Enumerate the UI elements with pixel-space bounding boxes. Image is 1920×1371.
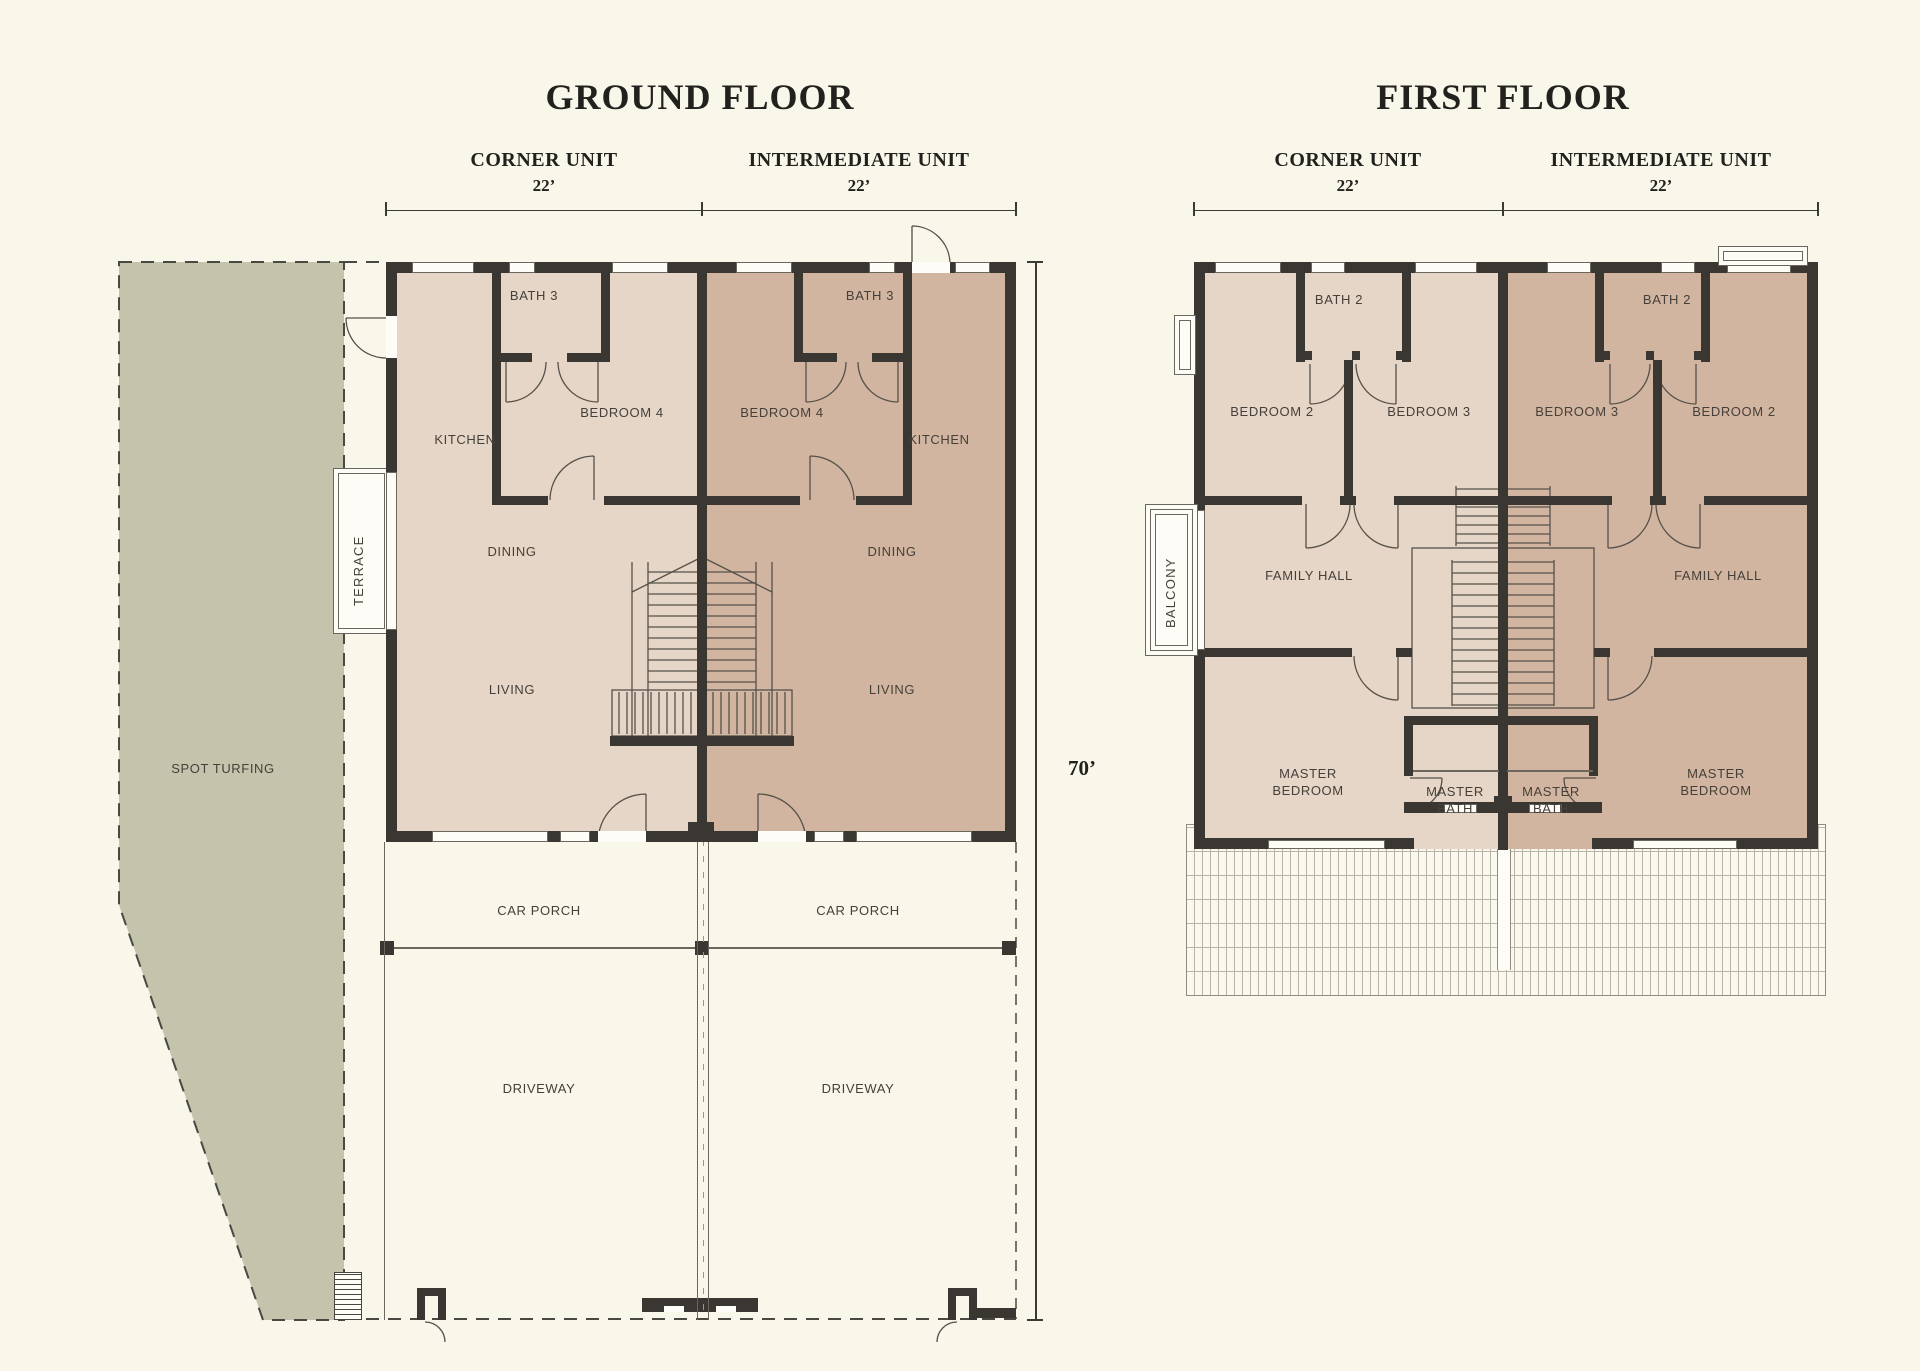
room-label-bath2-intermediate: BATH 2 [1643, 292, 1691, 309]
wall [1396, 351, 1411, 360]
first-party-wall [1498, 262, 1508, 850]
wall [1653, 360, 1662, 500]
wall [1194, 496, 1302, 505]
room-label-master-bedroom-corner: MASTER BEDROOM [1272, 766, 1343, 800]
bath-partition [1507, 770, 1593, 772]
room-label-bath3-corner: BATH 3 [510, 288, 558, 305]
dim-tick [385, 202, 387, 216]
wall [872, 353, 912, 362]
room-label-dining-corner: DINING [487, 544, 536, 561]
wall [567, 353, 610, 362]
depth-dimension-line [1035, 262, 1037, 1320]
first-width-dimension-line [1194, 210, 1818, 211]
wall [1503, 716, 1598, 725]
window [432, 831, 548, 842]
wall [1404, 716, 1499, 725]
wall [1402, 262, 1411, 362]
wall [604, 496, 702, 505]
ground-corner-unit-width: 22’ [533, 176, 556, 196]
room-label-car-porch-corner: CAR PORCH [497, 903, 580, 920]
room-label-kitchen-corner: KITCHEN [434, 432, 495, 449]
side-door-opening [386, 316, 397, 358]
terrace-sliding-door [386, 472, 397, 630]
window [1215, 262, 1281, 273]
ground-intermediate-unit-header: INTERMEDIATE UNIT [749, 149, 970, 172]
porch-post [380, 941, 394, 955]
first-floor-title: FIRST FLOOR [1376, 76, 1629, 118]
dim-tick [1027, 1319, 1043, 1321]
wall [1340, 496, 1356, 505]
wall [601, 262, 610, 362]
room-label-driveway-corner: DRIVEWAY [503, 1081, 576, 1098]
site-label-spot-turfing: SPOT TURFING [171, 761, 275, 778]
dim-tick [1015, 202, 1017, 216]
wall [702, 496, 800, 505]
wall [1654, 648, 1812, 657]
room-label-bedroom2-corner: BEDROOM 2 [1230, 404, 1313, 421]
wall [1396, 648, 1412, 657]
wall [492, 496, 548, 505]
wall [1352, 351, 1360, 360]
first-corner-unit-header: CORNER UNIT [1274, 149, 1421, 172]
wall [1650, 496, 1666, 505]
wall [794, 353, 837, 362]
window [869, 262, 895, 273]
room-label-bedroom3-corner: BEDROOM 3 [1387, 404, 1470, 421]
doorbell-box [688, 822, 714, 834]
first-intermediate-unit-width: 22’ [1650, 176, 1673, 196]
wall [1646, 351, 1654, 360]
wall [856, 496, 912, 505]
window [856, 831, 972, 842]
room-label-bedroom2-intermediate: BEDROOM 2 [1692, 404, 1775, 421]
side-window-box [1174, 315, 1196, 375]
driveway-divider [697, 842, 709, 1320]
room-label-driveway-intermediate: DRIVEWAY [822, 1081, 895, 1098]
site-label-terrace: TERRACE [352, 496, 365, 606]
plan-linework [0, 0, 1920, 1371]
window [1547, 262, 1591, 273]
window [1661, 262, 1695, 273]
bay-window-glass [1723, 251, 1803, 261]
ground-right-wall [1005, 262, 1016, 842]
room-label-master-bath-intermediate: MASTER BATH [1522, 784, 1580, 818]
dim-tick [1193, 202, 1195, 216]
wall [1194, 648, 1352, 657]
first-intermediate-unit-header: INTERMEDIATE UNIT [1551, 149, 1772, 172]
window [955, 262, 990, 273]
side-window-glass [1179, 320, 1191, 370]
ground-intermediate-unit-width: 22’ [848, 176, 871, 196]
dim-tick [1027, 261, 1043, 263]
wall [1589, 716, 1598, 776]
room-label-kitchen-intermediate: KITCHEN [908, 432, 969, 449]
room-label-family-hall-intermediate: FAMILY HALL [1674, 568, 1762, 585]
wall [1404, 716, 1413, 776]
window [612, 262, 668, 273]
wall [492, 262, 501, 362]
back-door-opening [912, 262, 950, 273]
room-label-bedroom3-intermediate: BEDROOM 3 [1535, 404, 1618, 421]
wall [1344, 360, 1353, 500]
room-label-living-corner: LIVING [489, 682, 535, 699]
room-label-bath3-intermediate: BATH 3 [846, 288, 894, 305]
wall [1701, 262, 1710, 362]
first-corner-unit-width: 22’ [1337, 176, 1360, 196]
wall [794, 262, 803, 362]
dim-tick [1502, 202, 1504, 216]
ground-corner-unit-header: CORNER UNIT [470, 149, 617, 172]
room-label-master-bedroom-intermediate: MASTER BEDROOM [1680, 766, 1751, 800]
depth-dimension-label: 70’ [1068, 756, 1096, 781]
wall [1296, 351, 1312, 360]
wall [903, 262, 912, 362]
porch-post [1002, 941, 1016, 955]
window [412, 262, 474, 273]
wall [1595, 351, 1610, 360]
dim-tick [701, 202, 703, 216]
wall [1508, 496, 1612, 505]
first-right-wall [1807, 262, 1818, 849]
wall [1296, 262, 1305, 362]
room-label-bath2-corner: BATH 2 [1315, 292, 1363, 309]
doorbell-box [1494, 796, 1512, 808]
front-door-opening [598, 831, 646, 842]
wall [1704, 496, 1812, 505]
wall [1694, 351, 1710, 360]
meter-box [334, 1272, 362, 1320]
wall [492, 353, 532, 362]
room-label-master-bath-corner: MASTER BATH [1426, 784, 1484, 818]
window [509, 262, 535, 273]
room-label-living-intermediate: LIVING [869, 682, 915, 699]
floor-plan-sheet: GROUND FLOOR FIRST FLOOR CORNER UNIT 22’… [0, 0, 1920, 1371]
window [1268, 840, 1385, 849]
room-label-car-porch-intermediate: CAR PORCH [816, 903, 899, 920]
window [736, 262, 792, 273]
ground-party-wall [697, 262, 707, 842]
ground-floor-title: GROUND FLOOR [546, 76, 855, 118]
site-left-edge [384, 842, 385, 1320]
room-label-family-hall-corner: FAMILY HALL [1265, 568, 1353, 585]
room-label-balcony: BALCONY [1164, 532, 1177, 628]
window [560, 831, 590, 842]
dim-tick [1817, 202, 1819, 216]
room-label-bedroom4-corner: BEDROOM 4 [580, 405, 663, 422]
bath-partition [1413, 770, 1499, 772]
window [1633, 840, 1737, 849]
window [814, 831, 844, 842]
room-label-dining-intermediate: DINING [867, 544, 916, 561]
wall [1594, 648, 1610, 657]
window [1311, 262, 1345, 273]
room-label-bedroom4-intermediate: BEDROOM 4 [740, 405, 823, 422]
window [1415, 262, 1477, 273]
bay-window [1718, 246, 1808, 266]
wall [1394, 496, 1498, 505]
wall [1595, 262, 1604, 362]
front-door-opening [758, 831, 806, 842]
